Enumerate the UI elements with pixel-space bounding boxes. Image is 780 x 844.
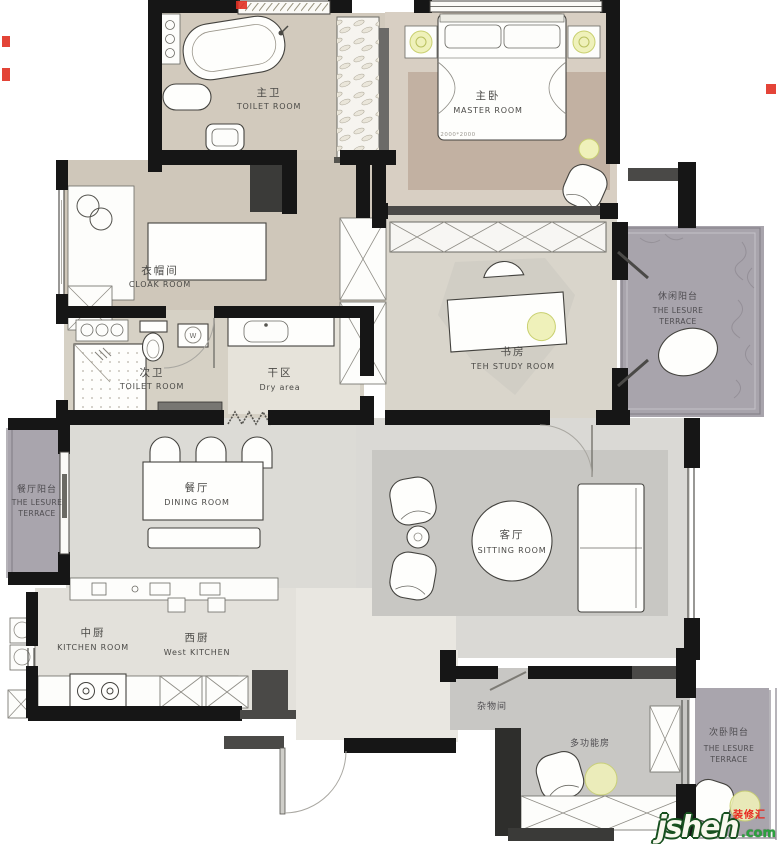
lamp-right: [573, 31, 595, 53]
label-dry-en: Dry area: [260, 383, 301, 392]
dining-bench: [148, 528, 260, 548]
label-dterrace-en2: TERRACE: [17, 509, 55, 518]
label-storage-zh: 杂物间: [477, 700, 507, 712]
tall-cabinet: [252, 670, 288, 712]
label-cloak-zh: 衣帽间: [141, 264, 179, 277]
label-leisure-en1: THE LESURE: [652, 306, 703, 315]
dry-counter: [228, 316, 334, 346]
label-bterrace-en2: TERRACE: [709, 755, 747, 764]
label-dining-zh: 餐厅: [185, 481, 210, 494]
label-cloak-en: CLOAK ROOM: [129, 280, 191, 289]
bath-cabinet: [160, 14, 180, 64]
watermark-badge: 装修汇: [733, 806, 766, 821]
lamp-left: [410, 31, 432, 53]
watermark-tld: .com: [741, 826, 776, 841]
label-bed-size: 2000*2000: [440, 132, 475, 138]
window-bath-top: [238, 1, 330, 14]
side-table: [407, 526, 429, 548]
label-master-bath-en: TOILET ROOM: [236, 102, 301, 111]
label-sitting-en: SITTING ROOM: [478, 546, 547, 555]
label-wkitchen-zh: 西厨: [185, 632, 210, 644]
label-dterrace-en1: THE LESURE: [11, 498, 62, 507]
label-master-room-en: MASTER ROOM: [453, 106, 522, 115]
washer: W: [178, 324, 208, 347]
label-leisure-zh: 休闲阳台: [658, 290, 698, 302]
bed: [438, 14, 566, 140]
floor-plan: W: [0, 0, 780, 844]
watermark-name: jsheh: [657, 810, 738, 844]
label-leisure-en2: TERRACE: [658, 317, 696, 326]
window-master-top: [430, 1, 602, 12]
label-master-bath-zh: 主卫: [257, 87, 282, 99]
washer-letter: W: [190, 332, 197, 340]
study-wardrobe: [390, 222, 606, 252]
sofa: [578, 484, 644, 612]
bath-sink: [206, 124, 244, 151]
window-cloak-left: [59, 190, 64, 294]
entry-door: [280, 748, 346, 814]
bath-bench: [163, 84, 211, 110]
label-dry-zh: 干区: [268, 367, 293, 379]
watermark-logo: 装修汇 jsheh .com: [657, 810, 776, 844]
label-bterrace-en1: THE LESURE: [703, 744, 754, 753]
closet-back-wall: [379, 28, 389, 160]
label-bath2-en: TOILET ROOM: [119, 382, 184, 391]
label-study-zh: 书房: [501, 345, 526, 358]
label-dining-en: DINING ROOM: [164, 498, 229, 507]
stove: [70, 674, 126, 708]
label-master-room-zh: 主卧: [476, 89, 501, 102]
label-sitting-zh: 客厅: [500, 528, 525, 541]
center-table: [472, 501, 552, 581]
label-bterrace-zh: 次卧阳台: [709, 726, 749, 738]
lamp-corner: [579, 139, 599, 159]
label-wkitchen-en: West KITCHEN: [164, 648, 230, 657]
label-study-en: TEH STUDY ROOM: [470, 362, 555, 371]
label-bath2-zh: 次卫: [140, 366, 165, 379]
kitchen-counter-bar: [70, 578, 278, 600]
multi-lamp: [585, 763, 617, 795]
bath2-cabinet: [76, 320, 128, 341]
label-kitchen-en: KITCHEN ROOM: [57, 643, 129, 652]
label-kitchen-zh: 中厨: [81, 626, 106, 639]
label-dterrace-zh: 餐厅阳台: [17, 483, 57, 495]
closet-shoes: [334, 17, 389, 163]
floor-plan-drawing: W: [0, 0, 780, 844]
label-multi-zh: 多功能房: [570, 737, 610, 749]
